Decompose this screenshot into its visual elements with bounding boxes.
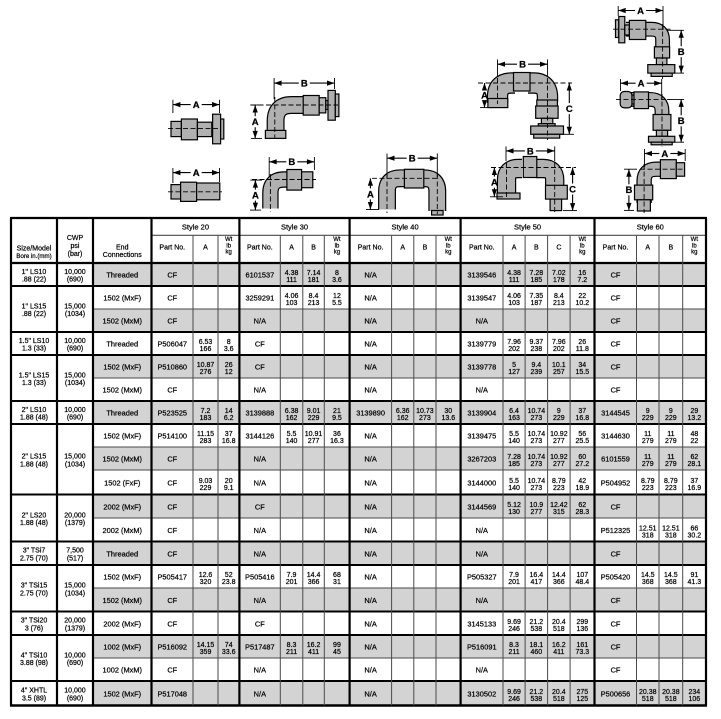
svg-text:16.3: 16.3 [330,438,344,445]
svg-text:P505416: P505416 [245,573,275,582]
svg-text:6.2: 6.2 [224,415,234,422]
svg-text:460: 460 [531,649,543,656]
svg-text:23.8: 23.8 [222,579,236,586]
svg-text:42: 42 [578,478,586,485]
svg-text:229: 229 [553,415,565,422]
svg-text:N/A: N/A [476,317,488,326]
svg-text:B: B [409,154,416,165]
svg-text:3144569: 3144569 [467,502,496,511]
svg-text:N/A: N/A [364,432,376,441]
svg-text:211: 211 [508,649,519,656]
svg-text:C: C [569,184,576,195]
svg-text:1.3 (33): 1.3 (33) [22,380,46,387]
svg-text:234: 234 [689,689,701,696]
svg-text:12.42: 12.42 [550,502,568,509]
svg-text:2" LS20: 2" LS20 [22,512,47,519]
svg-text:20: 20 [225,478,233,485]
svg-text:A: A [512,244,517,251]
svg-text:111: 111 [286,277,297,284]
svg-text:(690): (690) [67,277,83,284]
svg-text:20,000: 20,000 [64,618,86,625]
svg-text:48: 48 [690,431,698,438]
svg-text:3144126: 3144126 [245,432,274,441]
svg-text:277: 277 [531,509,543,516]
svg-text:25.5: 25.5 [575,438,589,445]
svg-text:62: 62 [578,502,586,509]
svg-text:538: 538 [531,626,543,633]
svg-text:P510860: P510860 [157,363,187,372]
svg-text:N/A: N/A [254,317,266,326]
svg-text:Threaded: Threaded [106,340,138,349]
svg-text:B: B [534,244,539,251]
svg-text:6101537: 6101537 [245,271,274,280]
svg-text:15,000: 15,000 [64,583,86,590]
svg-text:3130502: 3130502 [467,689,496,698]
svg-text:(690): (690) [67,415,83,422]
svg-text:kg: kg [445,250,451,256]
svg-text:34: 34 [578,362,586,369]
svg-text:lb: lb [692,243,697,249]
svg-text:7.2: 7.2 [577,277,587,284]
svg-text:lb: lb [335,243,340,249]
svg-text:315: 315 [553,509,565,516]
svg-text:10.92: 10.92 [550,431,568,438]
svg-text:1.88 (48): 1.88 (48) [20,415,48,422]
svg-text:CF: CF [611,317,621,326]
svg-text:20.38: 20.38 [662,689,680,696]
svg-text:31: 31 [333,579,341,586]
svg-text:3.5 (89): 3.5 (89) [22,695,46,702]
svg-text:CF: CF [167,596,177,605]
svg-text:11.15: 11.15 [197,431,214,438]
svg-text:4" XHTL: 4" XHTL [21,688,47,695]
svg-text:12.51: 12.51 [639,525,657,532]
svg-text:15.5: 15.5 [575,369,589,376]
svg-text:Threaded: Threaded [106,271,138,280]
svg-text:223: 223 [642,485,654,492]
svg-text:Wt: Wt [333,237,341,243]
svg-text:3.88 (98): 3.88 (98) [20,660,48,667]
svg-text:kg: kg [691,250,697,256]
svg-text:5: 5 [512,362,516,369]
svg-text:1502 (MxF): 1502 (MxF) [103,689,141,698]
svg-text:A: A [637,6,644,17]
svg-text:A: A [252,117,259,128]
svg-text:20,000: 20,000 [64,512,86,519]
svg-text:N/A: N/A [254,596,266,605]
svg-text:6.53: 6.53 [199,339,213,346]
svg-text:9.1: 9.1 [224,485,234,492]
svg-text:277: 277 [553,438,565,445]
svg-text:Connections: Connections [103,252,142,259]
svg-text:A: A [193,100,200,111]
svg-text:107: 107 [576,572,588,579]
svg-text:Wt: Wt [445,237,453,243]
svg-text:3.6: 3.6 [224,346,234,353]
svg-text:P500656: P500656 [601,689,631,698]
svg-text:CF: CF [611,363,621,372]
svg-text:(1034): (1034) [65,590,85,597]
svg-text:3144000: 3144000 [467,478,496,487]
svg-text:8.79: 8.79 [641,478,655,485]
svg-text:21: 21 [333,408,341,415]
svg-text:1502 (FxF): 1502 (FxF) [104,478,140,487]
svg-text:B: B [301,79,308,90]
svg-text:2" LS10: 2" LS10 [22,407,47,414]
svg-text:211: 211 [286,649,297,656]
svg-text:B: B [678,116,685,127]
svg-text:Size/Model: Size/Model [17,245,52,252]
svg-text:279: 279 [665,461,677,468]
svg-text:3" TSi15: 3" TSi15 [21,583,48,590]
svg-text:(1034): (1034) [65,311,85,318]
svg-text:CF: CF [167,478,177,487]
svg-text:14.5: 14.5 [641,572,655,579]
svg-text:4.38: 4.38 [285,270,299,277]
svg-text:10.73: 10.73 [416,408,434,415]
svg-text:A: A [645,244,650,251]
svg-text:10.1: 10.1 [552,362,566,369]
svg-text:7.9: 7.9 [287,572,297,579]
svg-text:9: 9 [646,408,650,415]
svg-text:73.3: 73.3 [575,649,589,656]
svg-text:N/A: N/A [364,386,376,395]
svg-text:368: 368 [642,579,654,586]
svg-text:125: 125 [576,696,588,703]
svg-text:P505327: P505327 [467,573,497,582]
svg-text:162: 162 [286,415,298,422]
svg-text:P504952: P504952 [601,478,631,487]
svg-text:1502 (MxM): 1502 (MxM) [103,596,142,605]
svg-text:CF: CF [167,455,177,464]
svg-text:273: 273 [419,415,431,422]
svg-text:kg: kg [226,250,232,256]
svg-text:A: A [367,189,374,200]
svg-text:299: 299 [576,619,588,626]
svg-text:N/A: N/A [364,363,376,372]
svg-text:CF: CF [167,549,177,558]
svg-text:16.4: 16.4 [530,572,544,579]
svg-text:16.9: 16.9 [688,485,702,492]
svg-text:B: B [625,185,632,196]
svg-text:psi: psi [71,243,80,250]
svg-text:16.2: 16.2 [307,642,321,649]
svg-text:52: 52 [225,572,233,579]
svg-text:9.03: 9.03 [199,478,213,485]
svg-text:A: A [661,149,668,160]
svg-text:48.4: 48.4 [575,579,589,586]
svg-text:14.15: 14.15 [197,642,215,649]
svg-text:CF: CF [611,386,621,395]
svg-text:1502 (MxF): 1502 (MxF) [103,432,141,441]
svg-text:A: A [400,244,405,251]
svg-text:103: 103 [508,300,520,307]
svg-text:10,000: 10,000 [64,338,86,345]
svg-text:16.2: 16.2 [552,642,566,649]
svg-text:7,500: 7,500 [66,548,84,555]
svg-text:1502 (MxM): 1502 (MxM) [103,455,142,464]
svg-text:202: 202 [508,346,520,353]
svg-text:CF: CF [167,271,177,280]
svg-text:187: 187 [531,300,543,307]
svg-text:kg: kg [334,250,340,256]
svg-text:B: B [423,244,428,251]
svg-text:223: 223 [665,485,677,492]
svg-text:(690): (690) [67,346,83,353]
svg-text:4.06: 4.06 [285,293,299,300]
svg-text:2002 (MxF): 2002 (MxF) [103,502,141,511]
svg-text:518: 518 [553,696,565,703]
svg-text:181: 181 [308,277,320,284]
svg-text:26: 26 [225,362,233,369]
svg-text:5.5: 5.5 [509,431,519,438]
svg-text:185: 185 [508,461,520,468]
svg-text:10.74: 10.74 [528,431,546,438]
svg-text:1.5" LS15: 1.5" LS15 [19,372,50,379]
svg-text:161: 161 [576,642,588,649]
svg-text:6.4: 6.4 [509,408,519,415]
svg-text:368: 368 [665,579,677,586]
svg-text:15,000: 15,000 [64,372,86,379]
svg-text:kg: kg [579,250,585,256]
svg-text:Part No.: Part No. [247,244,273,251]
svg-text:3139546: 3139546 [467,271,496,280]
svg-text:10.74: 10.74 [528,408,546,415]
svg-text:1502 (MxM): 1502 (MxM) [103,317,142,326]
svg-text:P516092: P516092 [157,643,187,652]
svg-text:N/A: N/A [364,455,376,464]
svg-text:140: 140 [508,438,520,445]
svg-text:277: 277 [308,438,320,445]
svg-text:2.75 (70): 2.75 (70) [20,555,48,562]
svg-text:Style 20: Style 20 [182,222,209,231]
svg-text:103: 103 [286,300,298,307]
svg-text:257: 257 [553,369,565,376]
svg-text:7.28: 7.28 [530,270,544,277]
svg-text:7.96: 7.96 [507,339,521,346]
svg-text:3139890: 3139890 [356,409,385,418]
svg-text:10.92: 10.92 [550,454,568,461]
svg-text:2" LS15: 2" LS15 [22,454,47,461]
svg-text:N/A: N/A [364,271,376,280]
svg-text:5.5: 5.5 [287,431,297,438]
svg-text:106: 106 [689,696,701,703]
svg-text:60: 60 [578,454,586,461]
svg-text:C: C [566,104,573,115]
svg-text:37: 37 [690,478,698,485]
svg-text:N/A: N/A [364,317,376,326]
svg-text:CF: CF [611,643,621,652]
svg-text:1002 (MxF): 1002 (MxF) [103,643,141,652]
svg-text:Style 60: Style 60 [637,222,664,231]
svg-text:CF: CF [611,619,621,628]
svg-text:99: 99 [333,642,341,649]
svg-text:27.2: 27.2 [575,461,589,468]
svg-text:Wt: Wt [225,237,233,243]
svg-text:6101559: 6101559 [601,455,630,464]
svg-text:(690): (690) [67,660,83,667]
svg-text:10,000: 10,000 [64,269,86,276]
svg-text:A: A [203,244,208,251]
svg-text:CF: CF [611,271,621,280]
svg-text:CWP: CWP [67,235,84,242]
svg-text:Threaded: Threaded [106,409,138,418]
svg-text:1.88 (48): 1.88 (48) [20,461,48,468]
svg-text:21.2: 21.2 [530,619,544,626]
svg-text:239: 239 [531,369,543,376]
svg-text:320: 320 [200,579,212,586]
svg-text:N/A: N/A [364,643,376,652]
svg-text:21.2: 21.2 [530,689,544,696]
svg-text:Part No.: Part No. [358,244,384,251]
svg-text:185: 185 [531,277,543,284]
svg-text:1502 (MxF): 1502 (MxF) [103,294,141,303]
svg-text:N/A: N/A [364,596,376,605]
svg-text:N/A: N/A [364,689,376,698]
svg-text:C: C [556,244,561,251]
svg-text:3144630: 3144630 [601,432,630,441]
svg-text:(1034): (1034) [65,380,85,387]
svg-text:37: 37 [578,408,586,415]
svg-text:9: 9 [669,408,673,415]
svg-text:End: End [116,244,129,251]
svg-text:Part No.: Part No. [159,244,185,251]
svg-text:10.74: 10.74 [528,478,546,485]
svg-text:3267203: 3267203 [467,455,496,464]
svg-text:B: B [527,146,534,157]
svg-text:318: 318 [665,532,677,539]
svg-text:62: 62 [690,454,698,461]
svg-text:N/A: N/A [254,386,266,395]
svg-text:CF: CF [167,386,177,395]
svg-text:3" TSi7: 3" TSi7 [23,548,46,555]
svg-text:66: 66 [690,525,698,532]
svg-text:N/A: N/A [254,549,266,558]
svg-text:3139904: 3139904 [467,409,496,418]
svg-text:1502 (MxM): 1502 (MxM) [103,386,142,395]
svg-text:N/A: N/A [364,478,376,487]
svg-text:16.8: 16.8 [575,415,589,422]
svg-text:30.2: 30.2 [688,532,702,539]
svg-text:33.6: 33.6 [222,649,236,656]
svg-text:CF: CF [611,666,621,675]
svg-text:538: 538 [531,696,543,703]
svg-text:273: 273 [531,415,543,422]
svg-text:Part No.: Part No. [603,244,629,251]
svg-text:41.3: 41.3 [688,579,702,586]
svg-text:1.5" LS10: 1.5" LS10 [19,338,50,345]
svg-text:36: 36 [333,431,341,438]
svg-text:166: 166 [200,346,212,353]
svg-text:162: 162 [397,415,409,422]
svg-text:8.79: 8.79 [664,478,678,485]
svg-text:12.6: 12.6 [199,572,213,579]
svg-text:1.88 (48): 1.88 (48) [20,520,48,527]
svg-text:417: 417 [531,579,543,586]
svg-text:15,000: 15,000 [64,303,86,310]
svg-text:183: 183 [200,415,212,422]
svg-text:N/A: N/A [364,666,376,675]
svg-text:N/A: N/A [364,526,376,535]
svg-text:14.5: 14.5 [664,572,678,579]
svg-text:140: 140 [508,485,520,492]
svg-text:CF: CF [255,502,265,511]
svg-text:45: 45 [333,649,341,656]
svg-text:Style 50: Style 50 [514,222,541,231]
svg-text:10,000: 10,000 [64,652,86,659]
svg-text:1" LS15: 1" LS15 [22,303,47,310]
svg-text:6.36: 6.36 [396,408,410,415]
svg-text:201: 201 [508,579,520,586]
svg-text:5.5: 5.5 [332,300,342,307]
svg-text:9.4: 9.4 [531,362,541,369]
svg-text:CF: CF [611,294,621,303]
svg-text:7.9: 7.9 [509,572,519,579]
svg-text:4.38: 4.38 [507,270,521,277]
svg-text:.88 (22): .88 (22) [22,311,46,318]
svg-text:10,000: 10,000 [64,688,86,695]
svg-text:14.4: 14.4 [307,572,321,579]
svg-text:18.1: 18.1 [530,642,544,649]
svg-text:411: 411 [553,649,564,656]
svg-text:26: 26 [578,339,586,346]
svg-text:3139778: 3139778 [467,363,496,372]
svg-text:3 (76): 3 (76) [25,625,43,632]
svg-text:5.12: 5.12 [507,502,521,509]
svg-text:A: A [481,91,488,102]
svg-text:Style 30: Style 30 [281,222,308,231]
svg-text:130: 130 [508,509,520,516]
svg-text:Bore in.(mm): Bore in.(mm) [16,253,51,260]
svg-text:246: 246 [508,696,520,703]
svg-text:B: B [678,47,685,58]
svg-text:29: 29 [690,408,698,415]
svg-text:N/A: N/A [364,340,376,349]
svg-text:(517): (517) [67,555,83,562]
svg-text:276: 276 [200,369,212,376]
svg-text:279: 279 [665,438,677,445]
svg-text:P505420: P505420 [601,573,631,582]
svg-text:9.69: 9.69 [507,619,521,626]
svg-text:18.9: 18.9 [575,485,589,492]
svg-text:P516091: P516091 [467,643,497,652]
svg-text:CF: CF [255,619,265,628]
svg-text:N/A: N/A [254,666,266,675]
svg-text:12.51: 12.51 [662,525,680,532]
svg-text:7.2: 7.2 [201,408,211,415]
svg-text:28.1: 28.1 [688,461,702,468]
svg-text:366: 366 [308,579,320,586]
svg-text:12: 12 [333,293,341,300]
svg-text:1502 (MxF): 1502 (MxF) [103,363,141,372]
svg-text:CF: CF [611,549,621,558]
svg-text:12: 12 [225,369,233,376]
svg-text:N/A: N/A [254,689,266,698]
svg-text:lb: lb [580,243,585,249]
svg-text:P506047: P506047 [157,340,187,349]
svg-text:28.3: 28.3 [575,509,589,516]
svg-text:CF: CF [255,340,265,349]
svg-text:1.3 (33): 1.3 (33) [22,346,46,353]
svg-text:A: A [491,178,498,189]
svg-text:13.6: 13.6 [441,415,455,422]
svg-text:P517048: P517048 [157,689,187,698]
svg-text:CF: CF [167,294,177,303]
svg-text:2002 (MxF): 2002 (MxF) [103,619,141,628]
svg-text:N/A: N/A [364,549,376,558]
svg-text:CF: CF [167,526,177,535]
svg-text:16: 16 [578,270,586,277]
